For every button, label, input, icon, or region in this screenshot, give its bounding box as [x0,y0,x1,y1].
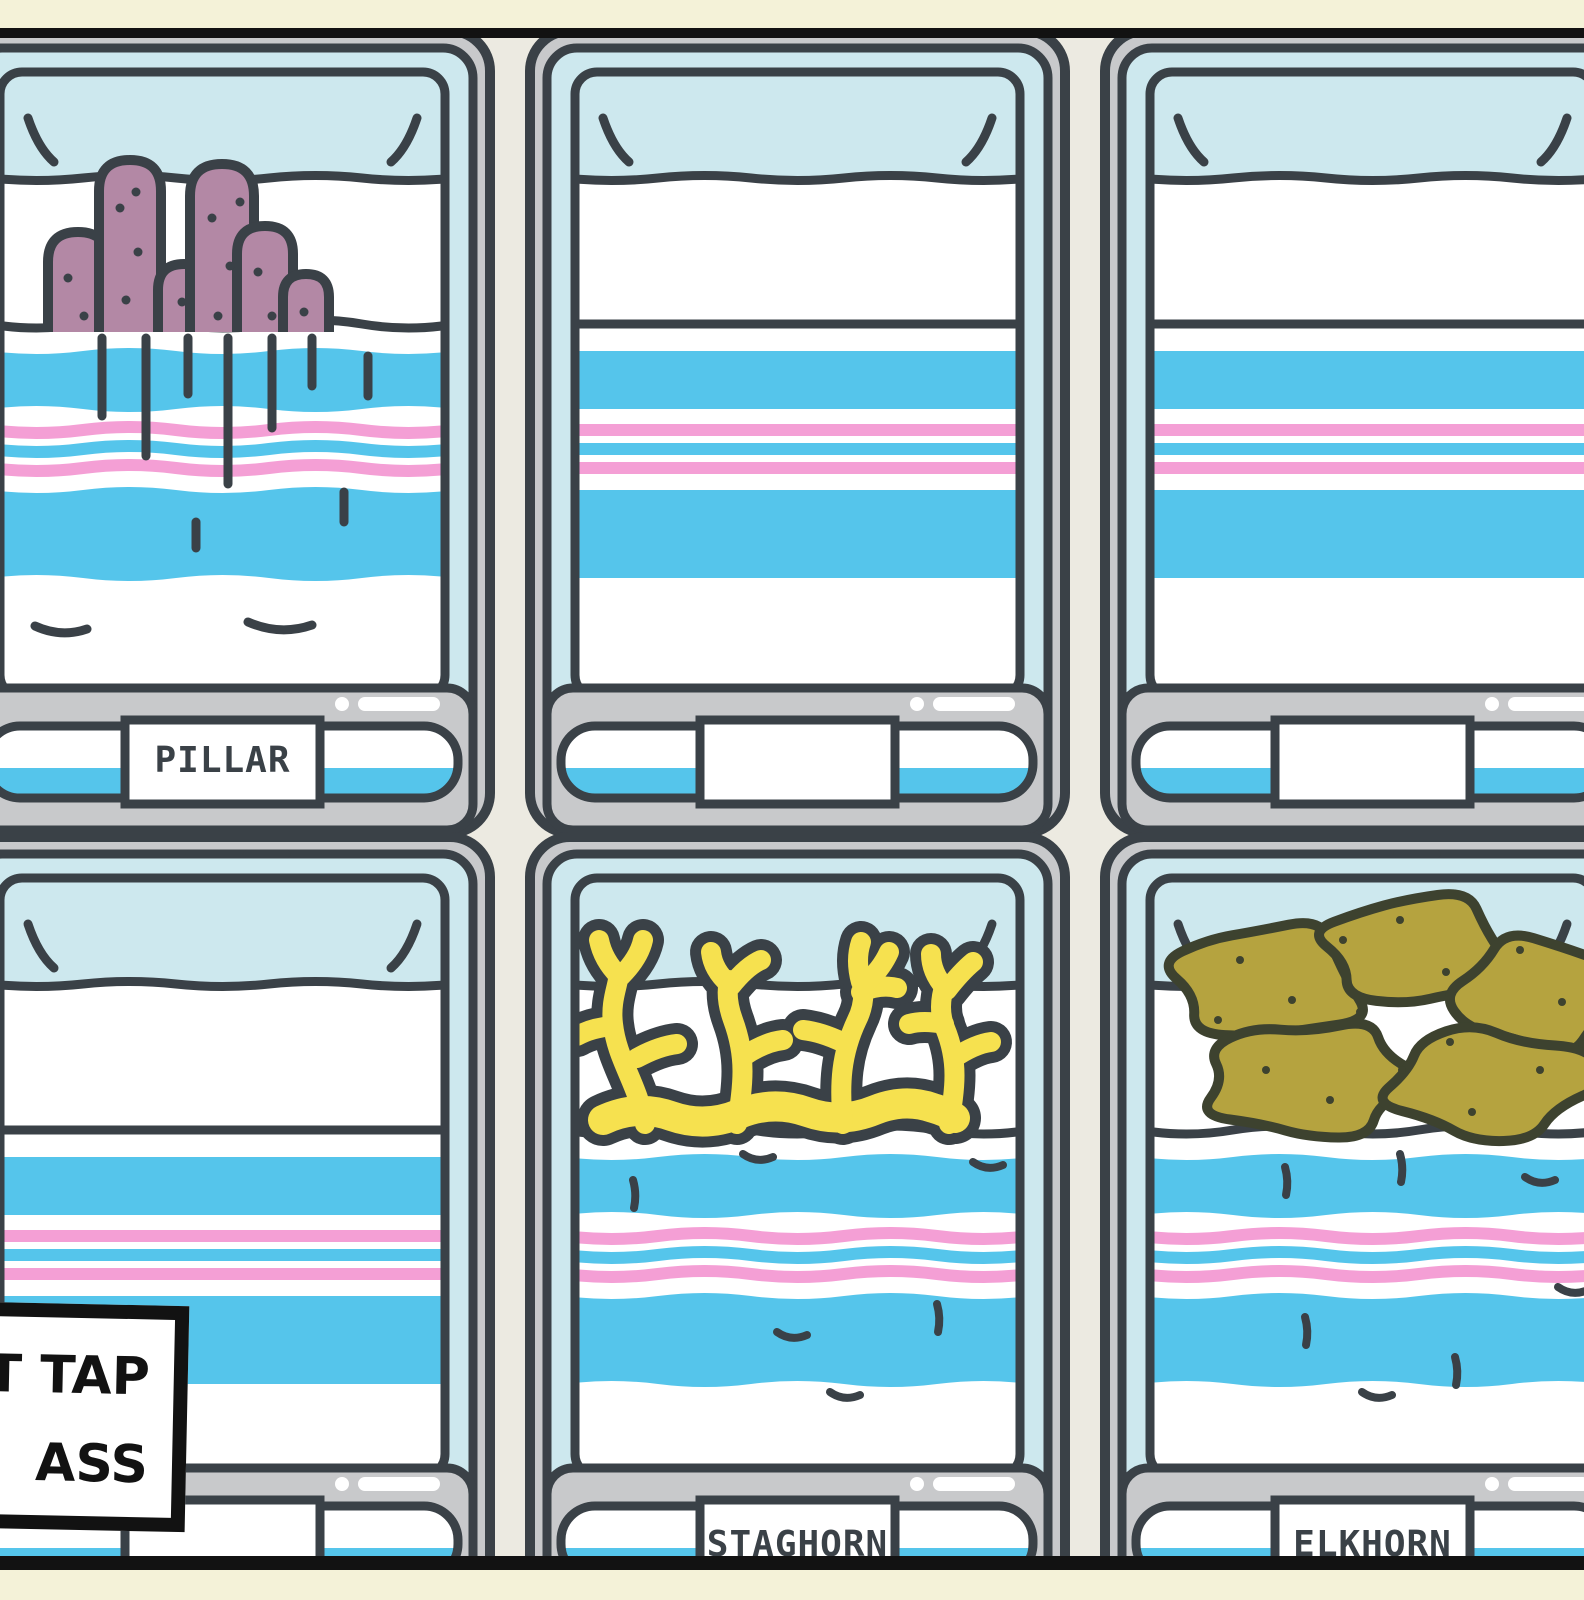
tank-label: STAGHORN [707,1524,888,1557]
tank-staghorn[interactable]: STAGHORN [525,832,1070,1557]
tank-art [1100,38,1584,838]
tank-empty-top-middle[interactable] [525,38,1070,838]
tank-art [0,38,495,838]
top-frame-bar [0,28,1584,38]
tank-art [1100,832,1584,1557]
aquarium-wall: PILLAR [0,38,1584,1557]
tank-art [525,38,1070,838]
tank-pillar[interactable]: PILLAR [0,38,495,838]
tank-empty-top-right[interactable] [1100,38,1584,838]
tank-art [525,832,1070,1557]
tank-elkhorn[interactable]: ELKHORN [1100,832,1584,1557]
bottom-frame-bar [0,1556,1584,1570]
tank-label: ELKHORN [1293,1524,1452,1557]
sign-text-line: ASS [0,1414,149,1509]
tank-label: PILLAR [154,740,290,781]
dont-tap-glass-sign: T TAP ASS [0,1298,189,1532]
sign-text-line: T TAP [0,1326,151,1421]
